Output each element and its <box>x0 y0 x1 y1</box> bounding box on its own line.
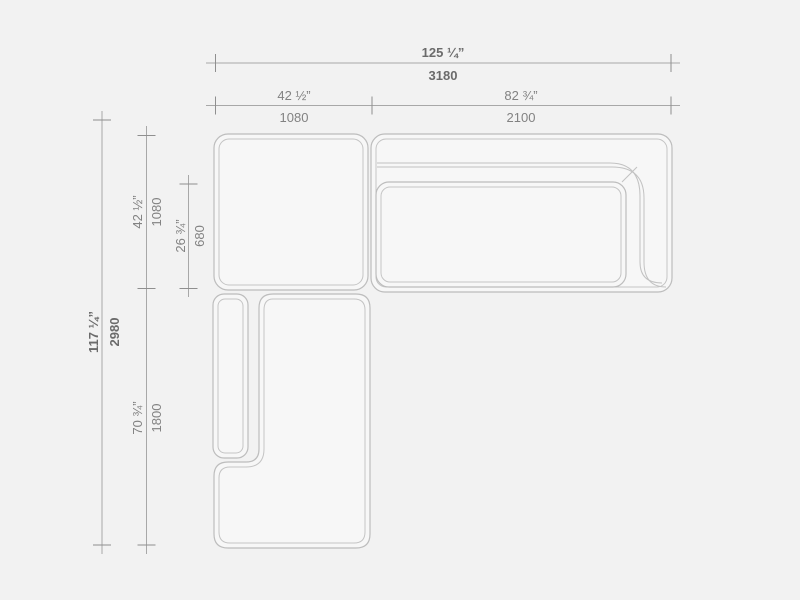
dim-total-depth-inches-label: 117 ¼” <box>86 311 101 353</box>
dim-module-depths: 42 ½” 1080 70 ¾” 1800 <box>130 126 164 554</box>
dim-total-depth: 117 ¼” 2980 <box>86 111 122 554</box>
dim-total-depth-mm-label: 2980 <box>107 318 122 347</box>
dim-sofa-width-inches-label: 82 ¾” <box>504 88 537 103</box>
modules <box>213 134 672 548</box>
dim-sofa-width-mm-label: 2100 <box>507 110 536 125</box>
dim-total-width: 125 ¼” 3180 <box>206 45 680 83</box>
sofa-dimension-drawing: 125 ¼” 3180 42 ½” 1080 82 ¾” 2100 117 ¼” <box>0 0 800 600</box>
dim-module-widths: 42 ½” 1080 82 ¾” 2100 <box>206 88 680 125</box>
dim-corner-width-inches-label: 42 ½” <box>277 88 310 103</box>
dim-seat-depth-inches-label: 26 ¾” <box>173 219 188 252</box>
dim-seat-depth: 26 ¾” 680 <box>173 175 207 297</box>
dim-seat-depth-mm-label: 680 <box>192 225 207 247</box>
sofa-module <box>371 134 672 292</box>
dim-corner-depth-inches-label: 42 ½” <box>130 195 145 228</box>
dim-chaise-depth-mm-label: 1800 <box>149 404 164 433</box>
corner-module <box>214 134 368 290</box>
dim-corner-width-mm-label: 1080 <box>280 110 309 125</box>
dim-total-width-inches-label: 125 ¼” <box>422 45 465 60</box>
dimensions: 125 ¼” 3180 42 ½” 1080 82 ¾” 2100 117 ¼” <box>86 45 680 554</box>
dim-chaise-depth-inches-label: 70 ¾” <box>130 401 145 434</box>
corner-module-outline <box>214 134 368 290</box>
chaise-module <box>213 294 370 548</box>
sofa-seat-cushion-outline <box>376 182 626 287</box>
drawing-canvas: 125 ¼” 3180 42 ½” 1080 82 ¾” 2100 117 ¼” <box>0 0 800 600</box>
dim-corner-depth-mm-label: 1080 <box>149 198 164 227</box>
dim-total-width-mm-label: 3180 <box>429 68 458 83</box>
